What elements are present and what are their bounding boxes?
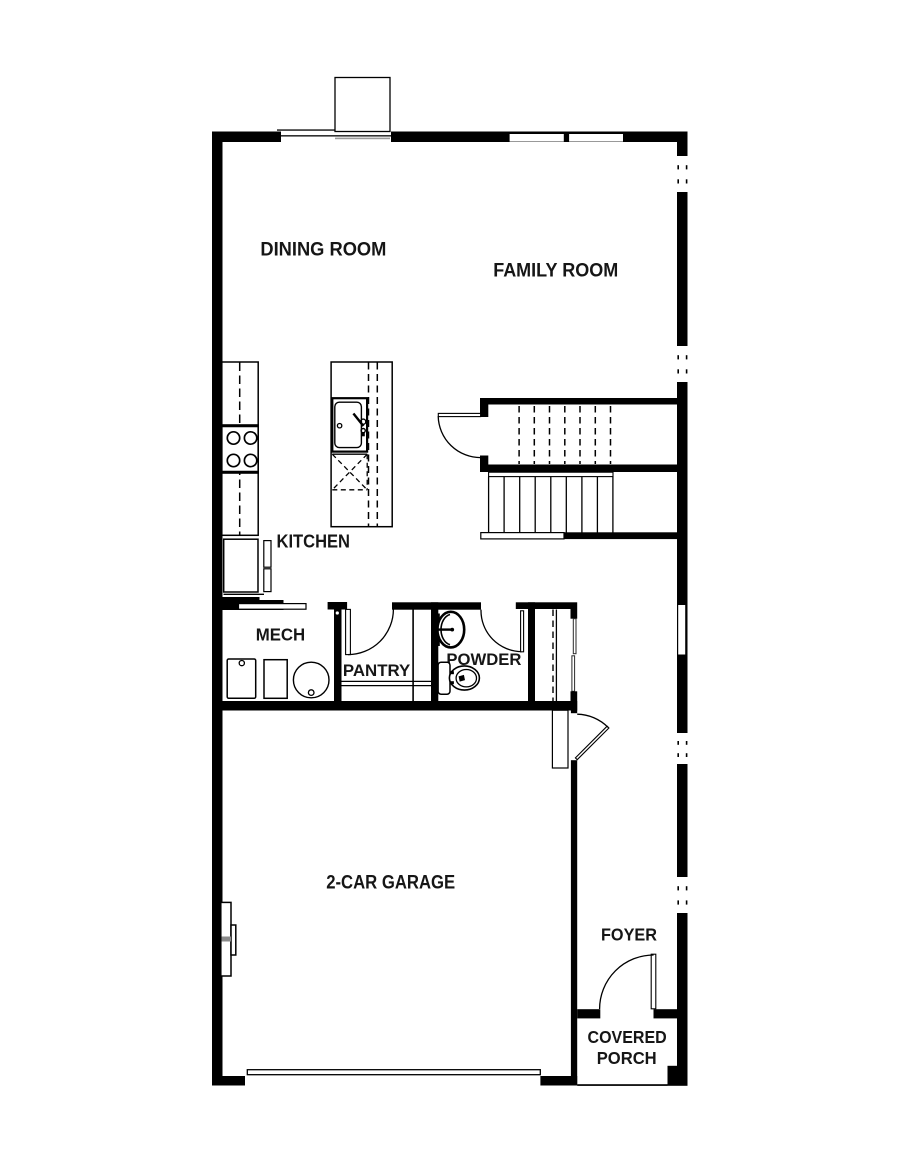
svg-text:COVERED: COVERED xyxy=(588,1027,667,1047)
svg-text:PORCH: PORCH xyxy=(597,1048,657,1068)
svg-text:MECH: MECH xyxy=(256,624,306,644)
svg-text:FOYER: FOYER xyxy=(601,924,657,944)
svg-text:DINING ROOM: DINING ROOM xyxy=(260,239,386,261)
svg-text:2-CAR GARAGE: 2-CAR GARAGE xyxy=(326,871,455,893)
svg-text:POWDER: POWDER xyxy=(446,650,521,669)
svg-text:KITCHEN: KITCHEN xyxy=(277,532,351,552)
svg-text:FAMILY ROOM: FAMILY ROOM xyxy=(493,259,618,281)
svg-text:PANTRY: PANTRY xyxy=(343,661,411,680)
